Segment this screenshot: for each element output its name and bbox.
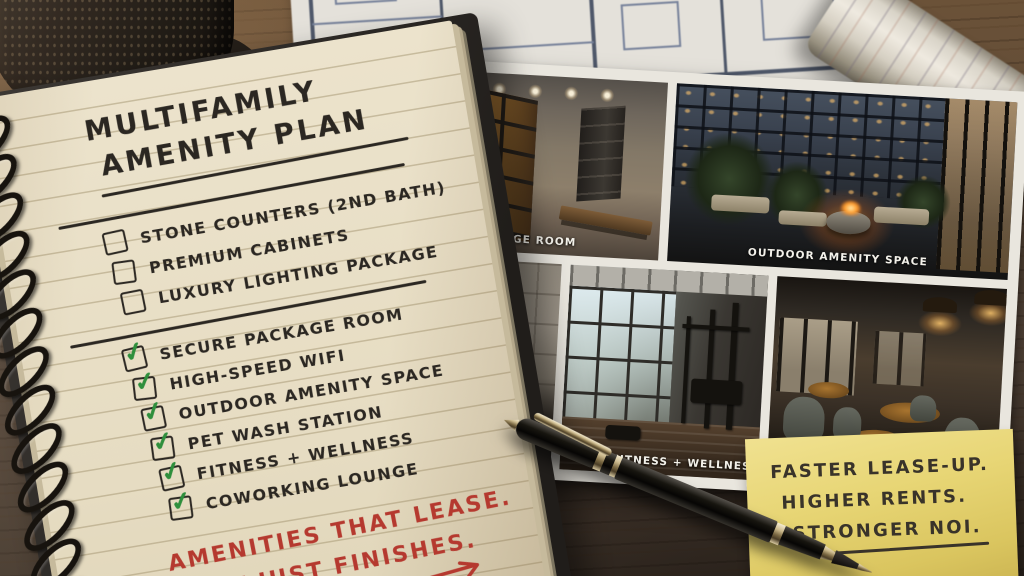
check-icon: ✓ [157,454,187,489]
workout-bench [605,425,641,441]
pendant-glow [917,309,962,337]
lounge-chair [910,394,937,422]
pen-tip [856,563,873,576]
pendant-light [974,289,1007,306]
photo-outdoor-amenity-space: OUTDOOR AMENITY SPACE [667,83,1018,280]
package-lockers-right [576,106,625,201]
outdoor-sofa [711,194,770,213]
pendant-light [923,297,958,314]
check-icon: ✓ [149,424,178,457]
outdoor-sofa [874,207,929,226]
checkbox-unchecked [120,289,147,316]
lit-glass-wall [936,98,1017,273]
gym-machine-frame [726,302,739,429]
gym-window-wall [562,285,676,426]
lounge-window [873,331,927,387]
weight-machine [690,378,743,405]
check-icon: ✓ [131,365,159,398]
check-icon: ✓ [119,334,150,369]
gym-machine-beam [682,324,749,332]
checkbox-unchecked [101,229,128,256]
check-icon: ✓ [139,394,169,428]
fire-flame [840,199,861,216]
bench [559,205,653,235]
checkbox-unchecked [111,260,137,286]
pen-nose-cone [831,550,860,573]
outdoor-sofa [778,210,827,227]
sticky-note: FASTER LEASE-UP. HIGHER RENTS. STRONGER … [745,429,1019,576]
checkbox-checked: ✓ [168,495,194,521]
check-icon: ✓ [167,484,196,517]
desk-scene: SECURE PACKAGE ROOM OUTDOOR AMENITY SPAC… [0,0,1024,576]
gym-machine-frame [681,316,691,423]
